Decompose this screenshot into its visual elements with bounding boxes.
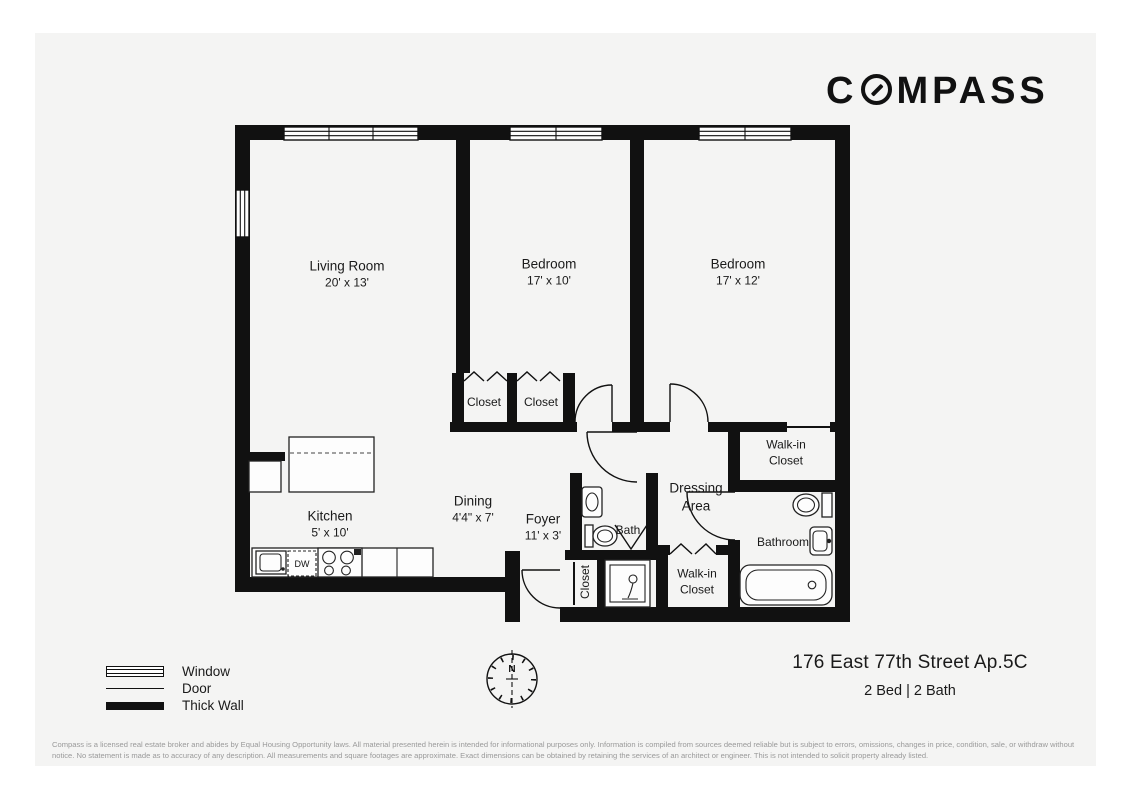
- legal-disclaimer: Compass is a licensed real estate broker…: [52, 739, 1079, 762]
- bath-sink-icon: [582, 487, 602, 517]
- windows-group: [236, 127, 791, 237]
- room-label-walkin-closet-bottom: Walk-in Closet: [667, 566, 727, 597]
- listing-title-block: 176 East 77th Street Ap.5C 2 Bed | 2 Bat…: [760, 652, 1060, 699]
- room-label-foyer: Foyer 11' x 3': [525, 510, 561, 543]
- bathtub-icon: [740, 565, 832, 605]
- room-label-living-room: Living Room 20' x 13': [309, 257, 384, 290]
- window-bedroom2-icon: [699, 127, 791, 140]
- bedroom1-door-icon: [575, 385, 612, 422]
- compass-rose-icon: N: [487, 650, 537, 708]
- room-label-foyer-closet: Closet: [578, 565, 594, 599]
- bathroom-sink-icon: [810, 527, 832, 555]
- legend-thick-wall-row: Thick Wall: [106, 699, 244, 712]
- legend-window-label: Window: [182, 664, 230, 679]
- bath-toilet-icon: [585, 525, 617, 547]
- window-living-icon: [284, 127, 418, 140]
- listing-address: 176 East 77th Street Ap.5C: [760, 652, 1060, 674]
- legend-thick-wall-icon: [106, 702, 164, 710]
- stove-icon: [318, 548, 362, 577]
- room-label-closet-1: Closet: [467, 395, 501, 411]
- bathroom-toilet-icon: [793, 493, 832, 517]
- room-label-bedroom-1: Bedroom 17' x 10': [522, 255, 577, 288]
- window-living-side-icon: [236, 190, 249, 237]
- legend-door-row: Door: [106, 682, 244, 695]
- room-label-closet-2: Closet: [524, 395, 558, 411]
- dressing-door-icon: [587, 432, 637, 482]
- listing-beds-baths: 2 Bed | 2 Bath: [760, 683, 1060, 699]
- room-label-walkin-closet-top: Walk-in Closet: [754, 437, 818, 468]
- closet2-accordion-door-icon: [517, 372, 560, 381]
- shower-icon: [605, 560, 650, 607]
- compass-north-label: N: [508, 664, 515, 675]
- legend-door-label: Door: [182, 681, 211, 696]
- closet1-accordion-door-icon: [464, 372, 507, 381]
- room-label-kitchen: Kitchen 5' x 10': [307, 507, 352, 540]
- window-bedroom1-icon: [510, 127, 602, 140]
- room-label-bedroom-2: Bedroom 17' x 12': [711, 255, 766, 288]
- room-label-bathroom: Bathroom: [757, 535, 809, 551]
- legend: Window Door Thick Wall: [106, 665, 244, 712]
- entry-door-icon: [522, 570, 560, 608]
- room-label-bath: Bath: [616, 523, 641, 539]
- walkin-bottom-accordion-door-icon: [670, 544, 716, 554]
- legend-door-icon: [106, 688, 164, 690]
- kitchen-island-icon: [249, 437, 374, 492]
- room-label-dining: Dining 4'4" x 7': [452, 492, 494, 525]
- bedroom2-door-icon: [670, 384, 708, 422]
- room-label-dressing-area: Dressing Area: [661, 479, 731, 514]
- legend-thick-wall-label: Thick Wall: [182, 698, 244, 713]
- page: CMPASS: [0, 0, 1131, 800]
- legend-window-icon: [106, 666, 164, 677]
- kitchen-sink-icon: [256, 551, 286, 574]
- legend-window-row: Window: [106, 665, 244, 678]
- svg-text:DW: DW: [295, 559, 310, 569]
